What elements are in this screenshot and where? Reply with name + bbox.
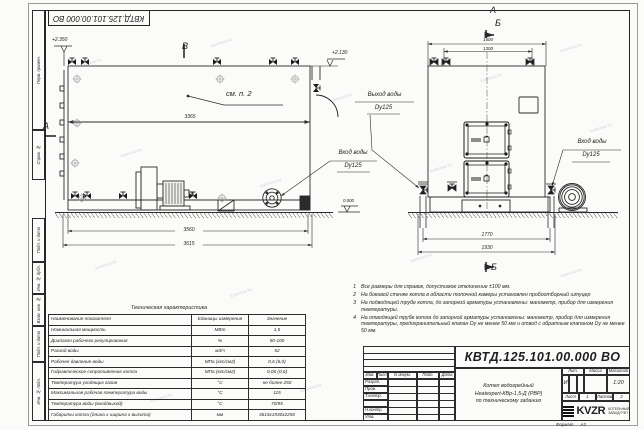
- side-inlet-label: Вход воды: [330, 150, 376, 156]
- col-header-podp: Подп.: [417, 372, 439, 379]
- grid-line: [388, 414, 455, 415]
- sheet-value: 1: [579, 393, 596, 401]
- col-header-doc: N докум.: [388, 372, 417, 379]
- section-label-v: В: [182, 42, 188, 51]
- tech-cell: мм: [192, 410, 249, 421]
- format-row: Формат А3: [556, 422, 586, 427]
- tech-cell: %: [192, 336, 249, 347]
- notes-block: 1 Все размеры для справок, допустимое от…: [350, 284, 628, 334]
- tech-cell: Габариты котла (длина х ширина х высота): [49, 410, 192, 421]
- front-inlet-label: Вход воды: [563, 139, 621, 145]
- dim-3615: 3615: [175, 242, 203, 247]
- boiler-side-view: [60, 66, 338, 211]
- scale-header: Масштаб: [607, 368, 630, 375]
- tech-cell: МПа (кгс/см2): [192, 357, 249, 368]
- ground-hatch-side: [55, 212, 333, 218]
- tech-row: Максимальная рабочая температура воды°С1…: [49, 389, 306, 400]
- col-header-izm: Изм.: [363, 372, 377, 379]
- format-value: А3: [580, 422, 585, 427]
- note-text: Все размеры для справок, допустимое откл…: [361, 284, 511, 291]
- section-label-a-side: А: [43, 122, 49, 131]
- elevation-marks: [54, 46, 360, 212]
- tech-row: Диапазон рабочего регулирования%50-100: [49, 336, 306, 347]
- side-view-valves: [68, 58, 320, 199]
- grid-line: [388, 400, 455, 401]
- col-header-data: Дата: [439, 372, 455, 379]
- tech-row: Температура уходящих газов°Сне более 250: [49, 378, 306, 389]
- tech-cell: 115: [249, 389, 306, 400]
- note-number: 1: [350, 284, 356, 291]
- side-inlet-dy: Dy125: [336, 163, 370, 169]
- lit-header: Лит.: [562, 368, 584, 375]
- tech-row: Температура воды (вход/выход)°С70/95: [49, 399, 306, 410]
- sheet-label: Лист: [562, 393, 579, 401]
- note-text: На отводящей трубе котла до запорной арм…: [361, 315, 628, 335]
- grid-line: [363, 366, 455, 367]
- front-view-dimensions: [418, 41, 555, 255]
- row-label-tkontr: Т.контр.: [363, 393, 388, 400]
- drawing-sheet: kotel-kvzr.kz kotel-kvzr.kz kotel-kvzr.k…: [0, 0, 644, 430]
- dim-3365: 3365: [176, 115, 204, 120]
- sheets-value: 2: [613, 393, 630, 401]
- tech-cell: Рабочее давление воды: [49, 357, 192, 368]
- title-block: Изм. Лист N докум. Подп. Дата Разраб. Пр…: [363, 346, 630, 421]
- furnace-door-lower: [464, 161, 511, 197]
- lit-cell-3: [577, 375, 584, 393]
- kvzr-logo-text: KVZR: [577, 406, 606, 417]
- note-item: 2 На боковой стенке котла в области топо…: [350, 292, 628, 299]
- grid-line: [388, 386, 455, 387]
- side-view-lugs: [71, 75, 300, 203]
- grid-line: [388, 393, 455, 394]
- tech-table-title: Техническая характеристика: [48, 306, 290, 311]
- tech-cell: м3/ч: [192, 346, 249, 357]
- grid-line: [388, 407, 455, 408]
- doc-title: Котел водогрейный Heatexpert-КВр-1,5-Д (…: [455, 368, 562, 421]
- scale-value: 1:20: [607, 375, 630, 393]
- note-text: На боковой стенке котла в области топочн…: [361, 292, 590, 299]
- kvzr-logo-icon: [563, 406, 574, 417]
- tech-cell: 52: [249, 346, 306, 357]
- side-outlet-label: Выход воды: [355, 92, 414, 98]
- tech-cell: Диапазон рабочего регулирования: [49, 336, 192, 347]
- note-text: На подводящей трубе котла, до запорной а…: [361, 300, 628, 313]
- tech-header-units: Единицы измерения: [192, 315, 249, 326]
- tech-row: Гидравлическое сопротивление котлаМПа (к…: [49, 367, 306, 378]
- doc-title-line2: Heatexpert-КВр-1,5-Д (РВР): [475, 391, 543, 399]
- ground-hatch-front: [408, 212, 618, 218]
- sheets-label: Листов: [596, 393, 613, 401]
- note-item: 1 Все размеры для справок, допустимое от…: [350, 284, 628, 291]
- section-label-a-front: А: [490, 6, 496, 15]
- tech-cell: 1,5: [249, 325, 306, 336]
- boiler-front-view: [428, 52, 550, 216]
- tech-cell: не более 250: [249, 378, 306, 389]
- tech-header-value: Значение: [249, 315, 306, 326]
- dim-1930: 1930: [473, 246, 501, 251]
- furnace-door-upper: [464, 122, 511, 158]
- elevation-2350: +2.350: [51, 38, 68, 43]
- col-header-list: Лист: [377, 372, 388, 379]
- tech-header-name: Наименование показателя: [49, 315, 192, 326]
- tech-cell: МВт: [192, 325, 249, 336]
- tech-row: Номинальная мощностьМВт1,5: [49, 325, 306, 336]
- tech-cell: 0,6 (6,0): [249, 357, 306, 368]
- format-label: Формат: [556, 422, 573, 427]
- tech-cell: Температура уходящих газов: [49, 378, 192, 389]
- dim-1600: 1600: [474, 38, 502, 43]
- tech-row: Габариты котла (длина х ширина х высота)…: [49, 410, 306, 421]
- row-label-empty: [363, 400, 388, 407]
- mass-header: Масса: [584, 368, 607, 375]
- tech-cell: °С: [192, 399, 249, 410]
- row-label-utv: Утв.: [363, 414, 388, 421]
- front-inlet-dy: Dy125: [572, 152, 610, 158]
- section-label-b-bottom: Б: [491, 263, 497, 272]
- tech-table-header-row: Наименование показателя Единицы измерени…: [49, 315, 306, 326]
- section-label-b-top: Б: [495, 19, 501, 28]
- lit-cell-2: [569, 375, 576, 393]
- note-number: 3: [350, 300, 356, 313]
- grid-line: [363, 353, 455, 354]
- see-note-callout: см. п. 2: [226, 90, 252, 98]
- grid-line: [363, 359, 455, 360]
- tech-cell: Температура воды (вход/выход): [49, 399, 192, 410]
- doc-title-line1: Котел водогрейный: [483, 383, 533, 391]
- elevation-2130: +2.130: [331, 51, 348, 56]
- tech-cell: Номинальная мощность: [49, 325, 192, 336]
- row-label-razrab: Разраб.: [363, 379, 388, 386]
- tech-cell: Максимальная рабочая температура воды: [49, 389, 192, 400]
- mass-value: [584, 375, 607, 393]
- lit-value: И: [562, 375, 569, 393]
- dim-1300: 1300: [474, 47, 502, 52]
- kvzr-logo-subtext: КОТЕЛЬНЫЙ ЗАВОД РЭП: [608, 407, 629, 416]
- tech-cell: 0,06 (0,6): [249, 367, 306, 378]
- side-outlet-dy: Dy125: [367, 105, 400, 111]
- tech-table: Наименование показателя Единицы измерени…: [48, 314, 306, 421]
- doc-title-line3: по техническому заданию: [476, 398, 541, 406]
- tech-cell: МПа (кгс/см2): [192, 367, 249, 378]
- row-label-nkontr: Н.контр.: [363, 407, 388, 414]
- logo-cell: KVZR КОТЕЛЬНЫЙ ЗАВОД РЭП: [562, 401, 630, 421]
- side-inlet-flange: [263, 189, 281, 207]
- tech-cell: 3615х1930х2250: [249, 410, 306, 421]
- doc-number: КВТД.125.101.00.000 ВО: [455, 346, 630, 368]
- dim-1770: 1770: [473, 233, 501, 238]
- elevation-0000: 0.000: [342, 199, 355, 203]
- tech-cell: °С: [192, 378, 249, 389]
- note-item: 3 На подводящей трубе котла, до запорной…: [350, 300, 628, 313]
- tech-row: Рабочее давление водыМПа (кгс/см2)0,6 (6…: [49, 357, 306, 368]
- tech-cell: Гидравлическое сопротивление котла: [49, 367, 192, 378]
- note-item: 4 На отводящей трубе котла до запорной а…: [350, 315, 628, 335]
- row-label-prov: Пров.: [363, 386, 388, 393]
- note-number: 2: [350, 292, 356, 299]
- blower-pump-assembly: [136, 167, 192, 210]
- tech-cell: 50-100: [249, 336, 306, 347]
- tech-row: Расход водым3/ч52: [49, 346, 306, 357]
- tech-cell: 70/95: [249, 399, 306, 410]
- tech-cell: °С: [192, 389, 249, 400]
- tech-cell: Расход воды: [49, 346, 192, 357]
- dim-3560: 3560: [175, 228, 203, 233]
- blower-fan-front: [559, 184, 588, 213]
- kvzr-logo-sub2: ЗАВОД РЭП: [608, 411, 629, 415]
- note-number: 4: [350, 315, 356, 335]
